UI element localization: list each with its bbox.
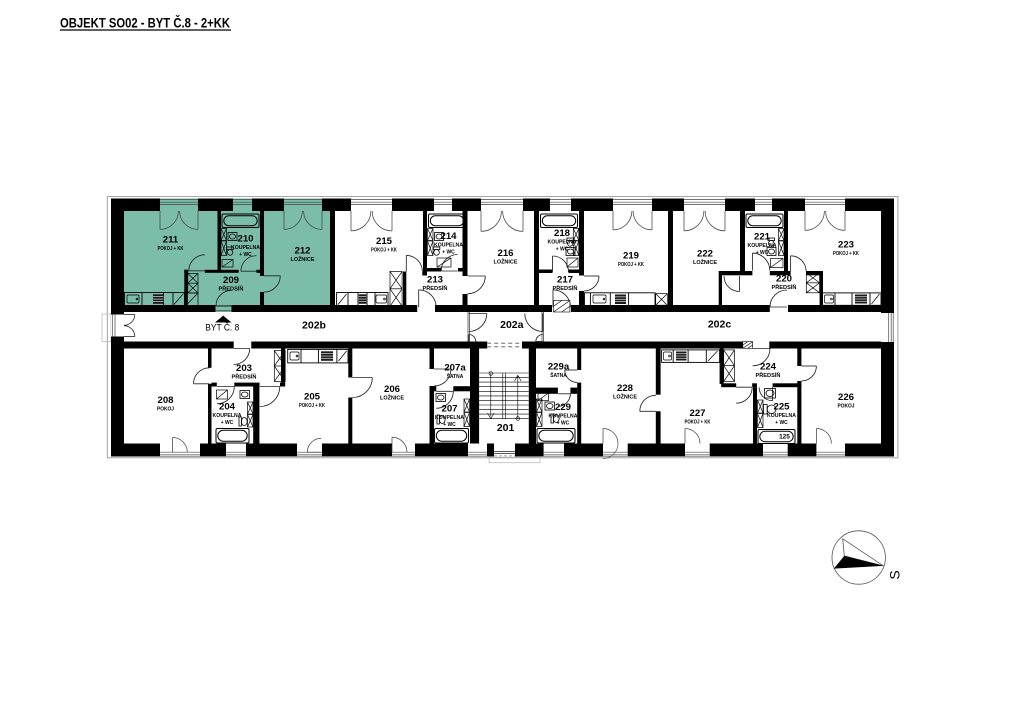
svg-text:208: 208 [157, 395, 174, 406]
svg-text:PŘEDSÍŇ: PŘEDSÍŇ [423, 284, 448, 292]
svg-text:226: 226 [838, 392, 854, 403]
svg-text:KOUPELNA: KOUPELNA [231, 245, 260, 251]
svg-text:222: 222 [697, 248, 713, 259]
svg-text:202a: 202a [500, 319, 524, 331]
svg-text:205: 205 [304, 391, 321, 402]
svg-text:PŘEDSÍŇ: PŘEDSÍŇ [756, 371, 781, 379]
svg-text:202c: 202c [708, 318, 732, 330]
svg-text:+ WC: + WC [239, 252, 252, 258]
svg-text:KOUPELNA: KOUPELNA [435, 415, 464, 421]
svg-text:S: S [887, 570, 903, 579]
svg-text:212: 212 [294, 245, 310, 256]
svg-text:210: 210 [237, 233, 253, 244]
svg-text:218: 218 [554, 228, 571, 239]
svg-text:219: 219 [623, 250, 639, 261]
svg-text:POKOJ + KK: POKOJ + KK [299, 403, 325, 409]
svg-text:213: 213 [427, 274, 443, 285]
svg-text:POKOJ: POKOJ [838, 403, 855, 409]
svg-text:204: 204 [219, 401, 236, 412]
svg-text:220: 220 [776, 273, 792, 284]
svg-text:223: 223 [838, 239, 854, 250]
svg-text:203: 203 [236, 363, 252, 374]
svg-text:+ WC: + WC [557, 420, 570, 426]
svg-text:216: 216 [497, 248, 513, 259]
svg-text:LOŽNICE: LOŽNICE [613, 392, 638, 400]
svg-text:207a: 207a [444, 362, 466, 373]
svg-text:+ WC: + WC [442, 249, 455, 255]
svg-text:BYT Č. 8: BYT Č. 8 [205, 323, 239, 333]
svg-text:221: 221 [754, 231, 771, 242]
svg-text:KOUPELNA: KOUPELNA [213, 413, 242, 419]
svg-text:206: 206 [384, 384, 400, 395]
svg-text:228: 228 [617, 383, 634, 394]
svg-text:202b: 202b [302, 319, 326, 331]
svg-text:PŘEDSÍŇ: PŘEDSÍŇ [232, 372, 257, 380]
svg-text:PŘEDSÍŇ: PŘEDSÍŇ [553, 284, 578, 292]
svg-text:211: 211 [163, 234, 179, 245]
svg-text:POKOJ + KK: POKOJ + KK [833, 251, 859, 257]
svg-text:217: 217 [557, 274, 573, 285]
svg-text:215: 215 [376, 236, 393, 247]
svg-text:POKOJ + KK: POKOJ + KK [371, 247, 397, 253]
svg-text:POKOJ + KK: POKOJ + KK [618, 262, 644, 268]
svg-text:+ WC: + WC [756, 250, 769, 256]
svg-text:POKOJ + KK: POKOJ + KK [685, 419, 711, 425]
svg-text:207: 207 [441, 403, 457, 414]
svg-text:PŘEDSÍŇ: PŘEDSÍŇ [772, 283, 797, 291]
svg-text:+ WC: + WC [556, 246, 569, 252]
svg-text:POKOJ: POKOJ [157, 406, 174, 412]
svg-text:224: 224 [760, 361, 777, 372]
svg-text:LOŽNICE: LOŽNICE [291, 255, 316, 263]
svg-text:+ WC: + WC [775, 420, 788, 426]
svg-text:+ WC: + WC [443, 422, 456, 428]
svg-text:POKOJ + KK: POKOJ + KK [158, 246, 184, 252]
svg-text:225: 225 [773, 401, 790, 412]
svg-text:KOUPELNA: KOUPELNA [748, 243, 777, 249]
svg-text:KOUPELNA: KOUPELNA [548, 239, 577, 245]
svg-text:LOŽNICE: LOŽNICE [693, 258, 718, 266]
svg-text:229a: 229a [548, 361, 570, 372]
svg-text:209: 209 [223, 275, 239, 286]
svg-text:PŘEDSÍŇ: PŘEDSÍŇ [219, 284, 244, 292]
svg-text:201: 201 [497, 422, 515, 434]
svg-text:ŠATNA: ŠATNA [447, 372, 464, 380]
svg-text:OBJEKT SO02 - BYT Č.8 - 2+KK: OBJEKT SO02 - BYT Č.8 - 2+KK [60, 16, 230, 31]
svg-text:LOŽNICE: LOŽNICE [494, 257, 519, 265]
svg-text:125: 125 [779, 434, 790, 441]
svg-text:ŠATNA: ŠATNA [550, 371, 567, 379]
svg-text:227: 227 [689, 408, 705, 419]
svg-text:214: 214 [440, 231, 457, 242]
svg-text:+ WC: + WC [221, 420, 234, 426]
svg-text:KOUPELNA: KOUPELNA [434, 242, 463, 248]
svg-text:LOŽNICE: LOŽNICE [380, 393, 405, 401]
svg-text:229: 229 [555, 402, 571, 413]
svg-text:KOUPELNA: KOUPELNA [767, 413, 796, 419]
svg-text:KOUPELNA: KOUPELNA [549, 413, 578, 419]
